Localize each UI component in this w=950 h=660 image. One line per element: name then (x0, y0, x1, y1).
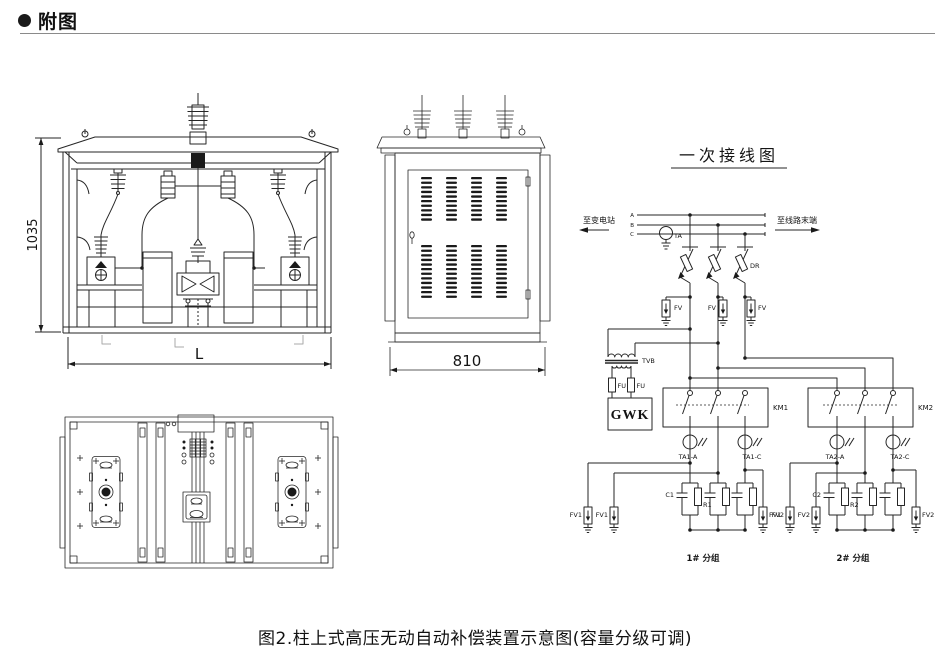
circuit-title: 一次接线图 (679, 146, 779, 165)
fu-label-2: FU (637, 382, 646, 390)
ta2c-label: TA2-C (890, 453, 910, 461)
km1-label: KM1 (773, 404, 788, 412)
ta1c-label: TA1-C (742, 453, 762, 461)
header-rule (20, 33, 935, 34)
front-view-lines (35, 93, 338, 369)
to-line-end-label: 至线路末端 (777, 215, 817, 225)
fu-label-1: FU (618, 382, 627, 390)
circuit-diagram: 一次接线图 至变电站 至线路末端 A B C TA DR FV FV FV TV… (575, 135, 950, 595)
to-substation-label: 至变电站 (583, 215, 615, 225)
side-width-dim: 810 (453, 352, 482, 370)
ta-label: TA (673, 232, 682, 240)
c2-label: C2 (812, 491, 821, 499)
fv2-label-c: FV2 (922, 511, 934, 519)
fv-label-3: FV (758, 304, 767, 312)
section-title: 附图 (38, 7, 78, 34)
figure-caption: 图2.柱上式高压无动自动补偿装置示意图(容量分级可调) (0, 624, 950, 649)
fv-label-2: FV (708, 304, 717, 312)
ta1a-label: TA1-A (678, 453, 698, 461)
phase-a-label: A (630, 213, 634, 219)
front-height-dim: 1035 (26, 218, 41, 251)
tvb-label: TVB (641, 357, 655, 365)
group1-label: 1# 分组 (687, 553, 720, 564)
r1-label: R1 (703, 501, 712, 509)
fv-label-1: FV (674, 304, 683, 312)
fv1-label-a: FV1 (570, 511, 582, 519)
phase-b-label: B (630, 223, 634, 229)
ta2a-label: TA2-A (825, 453, 845, 461)
front-width-dim: L (195, 345, 204, 363)
fv2-label-b: FV2 (798, 511, 810, 519)
side-view-lines (377, 95, 550, 376)
gwk-label: GWK (611, 408, 650, 423)
r2-label: R2 (850, 501, 859, 509)
bullet-icon (18, 14, 31, 27)
top-view-drawing (50, 395, 350, 585)
c1-label: C1 (665, 491, 674, 499)
section-header: 附图 (18, 7, 78, 34)
side-view-drawing: 810 (355, 85, 585, 385)
km2-label: KM2 (918, 404, 933, 412)
dr-label: DR (750, 262, 760, 270)
front-view-drawing: 1035 L (25, 85, 355, 385)
fv2-label-a: FV2 (772, 511, 784, 519)
phase-c-label: C (630, 232, 634, 238)
group2-label: 2# 分组 (837, 553, 870, 564)
top-view-lines (60, 415, 338, 568)
page: 附图 (0, 0, 950, 660)
fv1-label-b: FV1 (596, 511, 608, 519)
